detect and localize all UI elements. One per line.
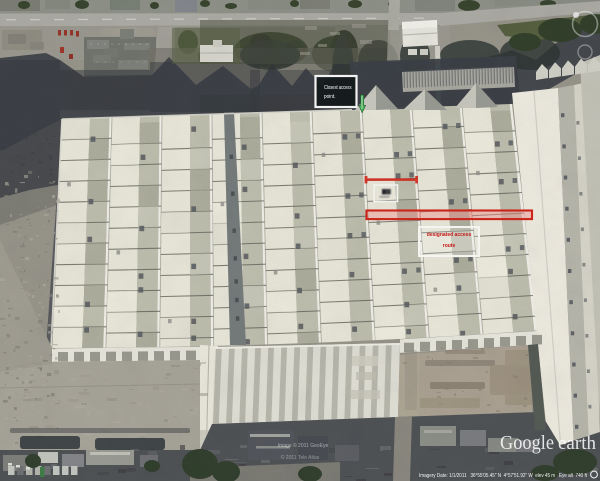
svg-text:Closest access: Closest access bbox=[324, 85, 352, 91]
svg-text:point.: point. bbox=[324, 94, 336, 100]
svg-text:© 2011 Tele Atlas: © 2011 Tele Atlas bbox=[281, 454, 320, 461]
svg-text:route: route bbox=[443, 243, 456, 249]
svg-text:designated access: designated access bbox=[427, 232, 472, 238]
svg-text:Image © 2011 GeoEye: Image © 2011 GeoEye bbox=[278, 442, 329, 449]
svg-text:Imagery Date: 1/1/2011 36°55: Imagery Date: 1/1/2011 36°55′05.45″ N 4°… bbox=[419, 473, 587, 479]
svg-text:earth: earth bbox=[558, 433, 596, 454]
svg-text:Google: Google bbox=[500, 433, 554, 454]
